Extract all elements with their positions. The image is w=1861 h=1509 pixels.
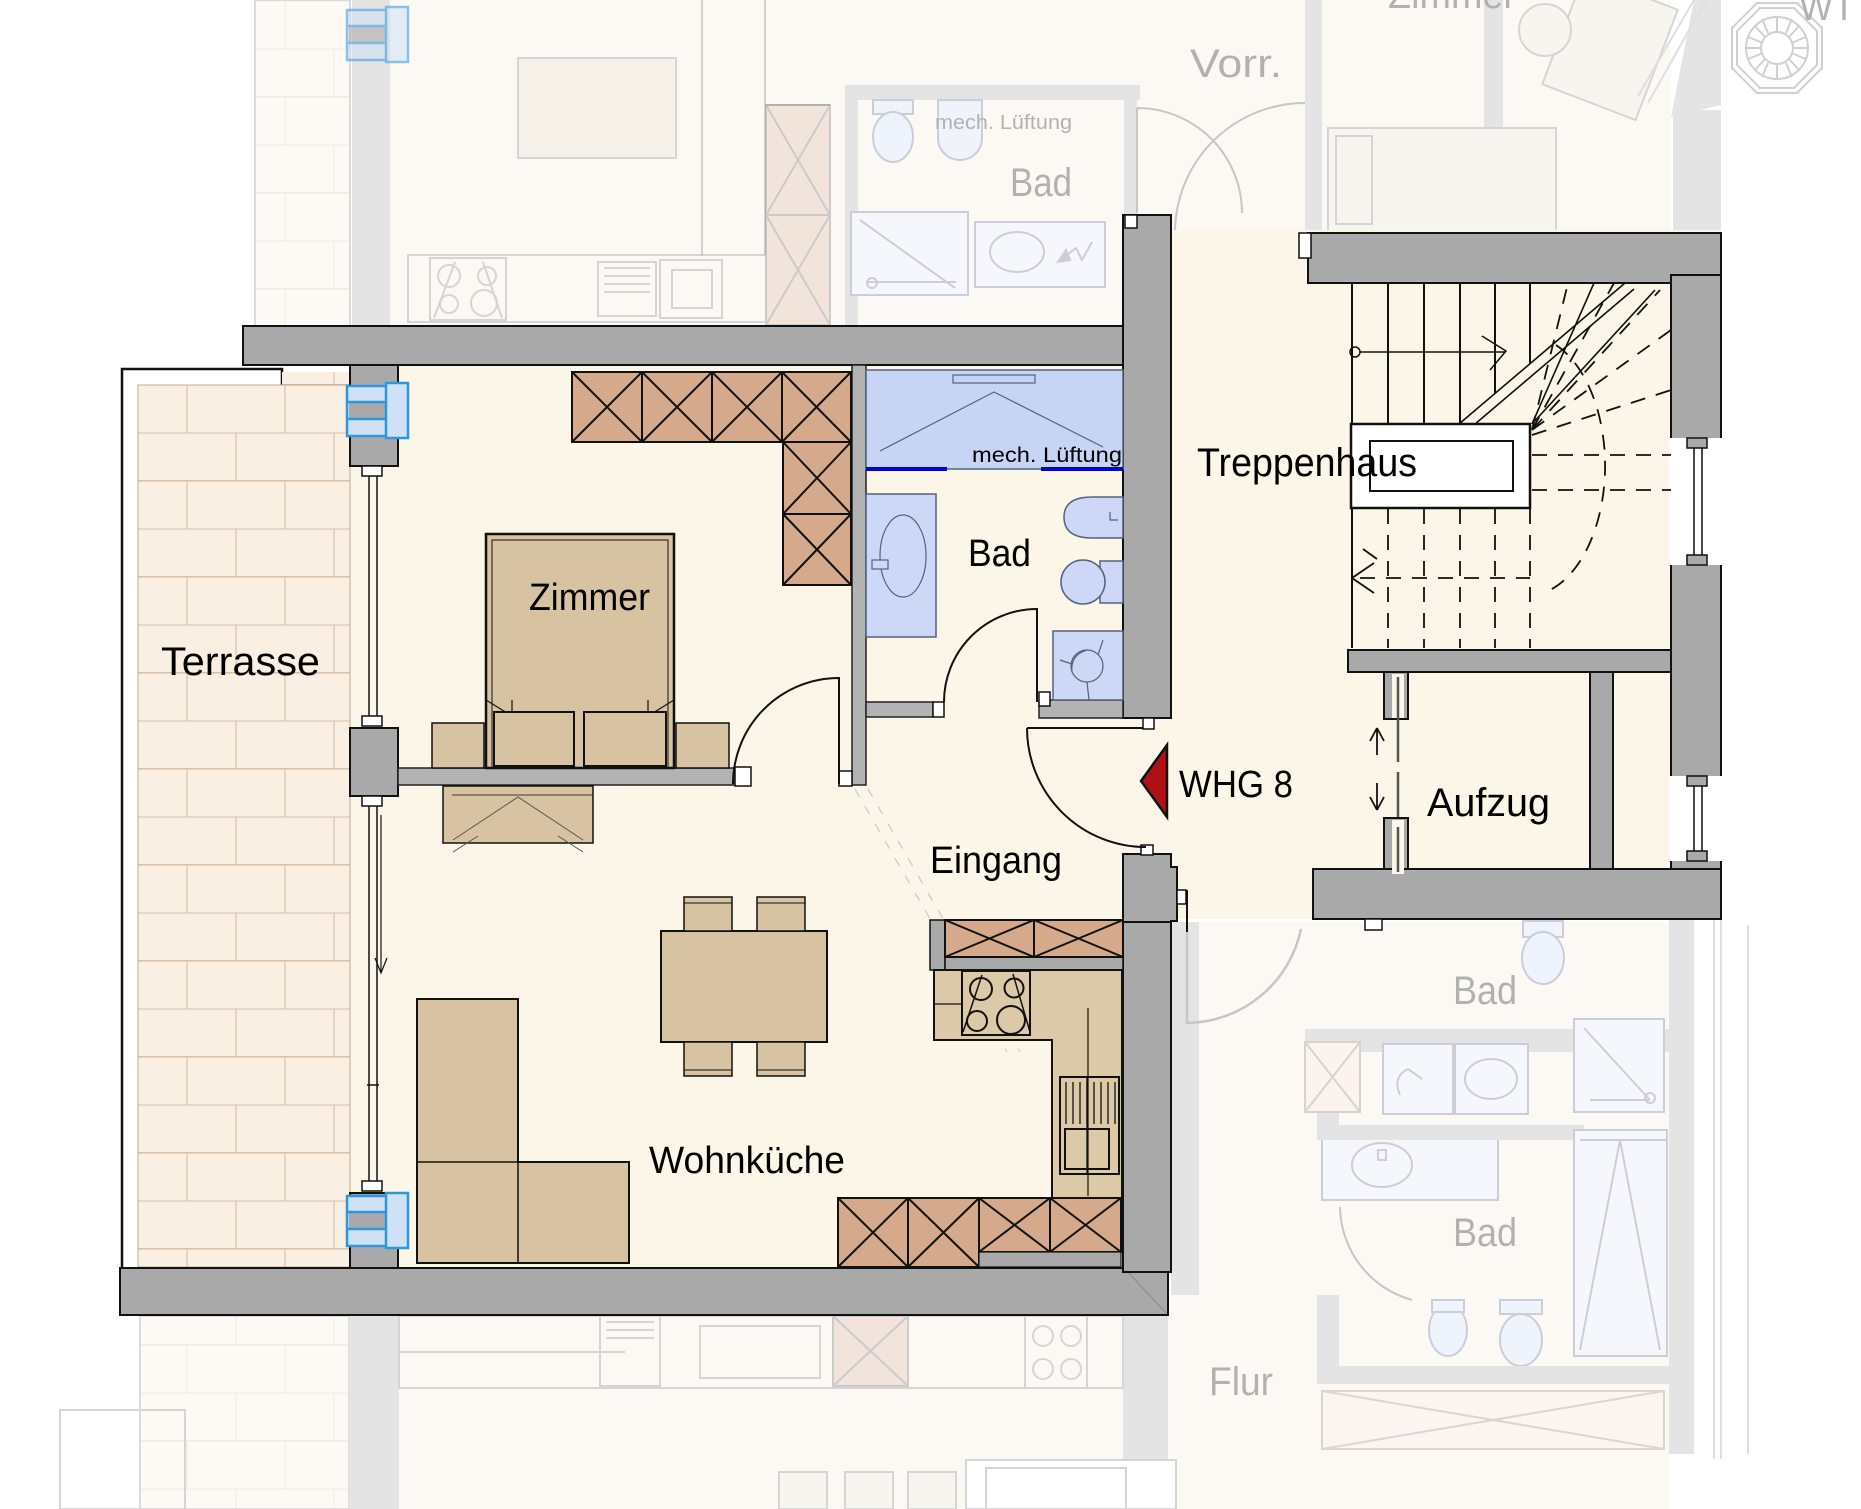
svg-text:mech. Lüftung: mech. Lüftung <box>972 444 1122 467</box>
svg-text:Zimmer: Zimmer <box>1388 0 1516 17</box>
svg-text:Zimmer: Zimmer <box>529 577 650 619</box>
svg-text:Vorr.: Vorr. <box>1190 42 1282 86</box>
svg-text:Flur: Flur <box>1209 1360 1273 1404</box>
svg-text:mech. Lüftung: mech. Lüftung <box>935 112 1072 134</box>
svg-text:Bad: Bad <box>1453 969 1517 1013</box>
svg-text:WHG 8: WHG 8 <box>1179 764 1293 806</box>
svg-text:WT: WT <box>1799 0 1855 29</box>
svg-text:Treppenhaus: Treppenhaus <box>1197 441 1417 485</box>
svg-text:Bad: Bad <box>1453 1211 1517 1255</box>
svg-text:Eingang: Eingang <box>930 840 1062 882</box>
svg-text:Wohnküche: Wohnküche <box>649 1140 845 1182</box>
svg-text:Bad: Bad <box>1010 161 1072 205</box>
svg-text:Bad: Bad <box>968 533 1031 575</box>
svg-text:Terrasse: Terrasse <box>161 640 320 684</box>
svg-text:Aufzug: Aufzug <box>1427 781 1550 825</box>
